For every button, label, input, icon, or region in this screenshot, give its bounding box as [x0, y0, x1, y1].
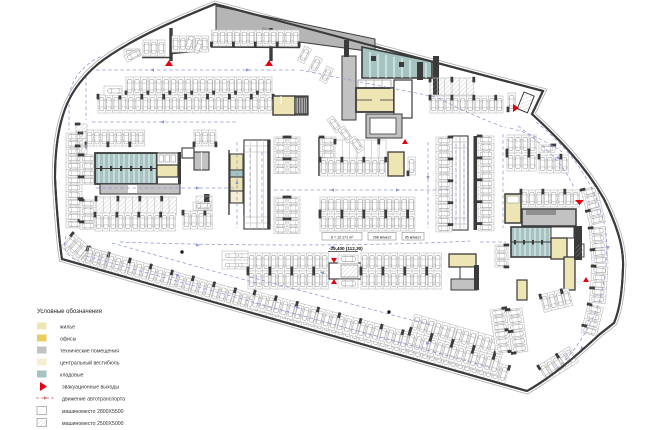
svg-text:эвакуационные выходы: эвакуационные выходы	[62, 385, 119, 391]
svg-text:офисы: офисы	[60, 337, 77, 343]
svg-text:S = 12 171 m²: S = 12 171 m²	[331, 235, 354, 239]
svg-text:жилье: жилье	[60, 325, 75, 331]
svg-text:95 м/мест: 95 м/мест	[405, 235, 422, 239]
svg-text:машиноместо 2500X5000: машиноместо 2500X5000	[62, 421, 124, 427]
svg-text:Условные обозначения: Условные обозначения	[37, 309, 102, 315]
svg-text:движение автотранспорта: движение автотранспорта	[62, 397, 125, 403]
svg-text:кладовые: кладовые	[60, 373, 84, 379]
svg-text:-29,400 (112,30): -29,400 (112,30)	[329, 246, 363, 251]
svg-text:центральный вестибюль: центральный вестибюль	[60, 360, 120, 367]
svg-text:298 м/мест: 298 м/мест	[373, 235, 392, 239]
svg-text:машиноместо 2800X5500: машиноместо 2800X5500	[62, 409, 124, 415]
svg-text:технические помещения: технические помещения	[60, 349, 119, 355]
